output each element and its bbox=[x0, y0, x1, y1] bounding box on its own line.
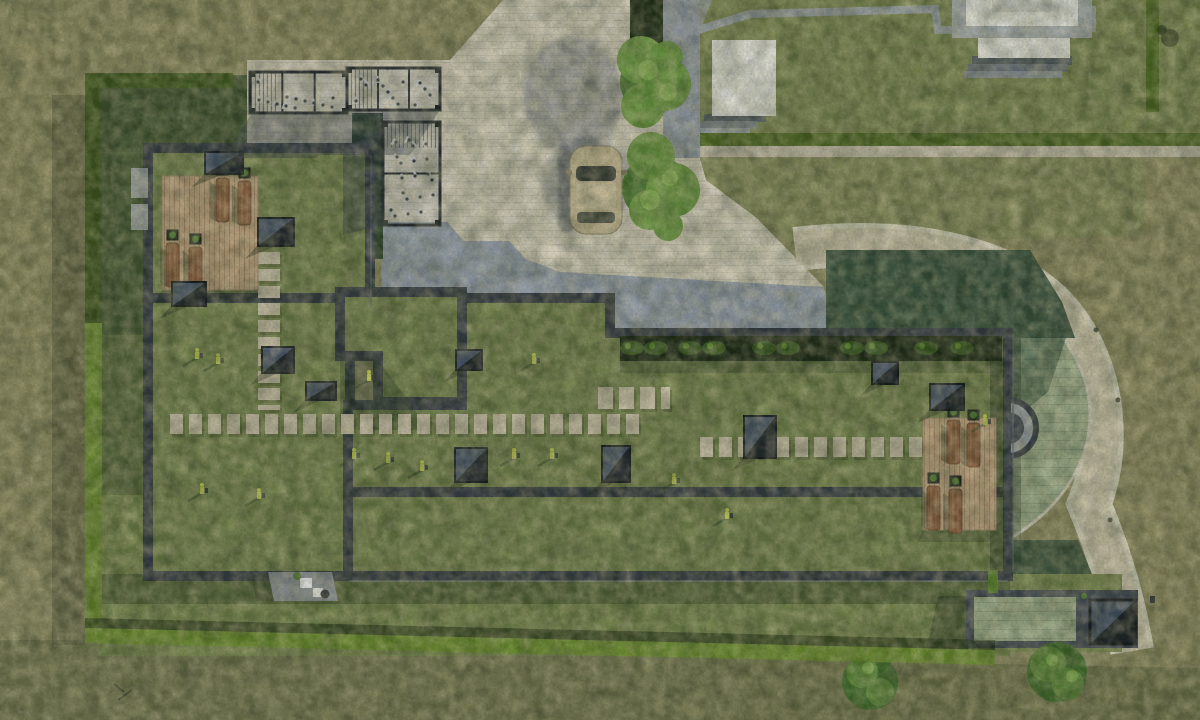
site-plan-render bbox=[0, 0, 1200, 720]
aerial-view-canvas bbox=[0, 0, 1200, 720]
fine-grain bbox=[0, 0, 1200, 720]
texture-overlays bbox=[0, 0, 1200, 720]
